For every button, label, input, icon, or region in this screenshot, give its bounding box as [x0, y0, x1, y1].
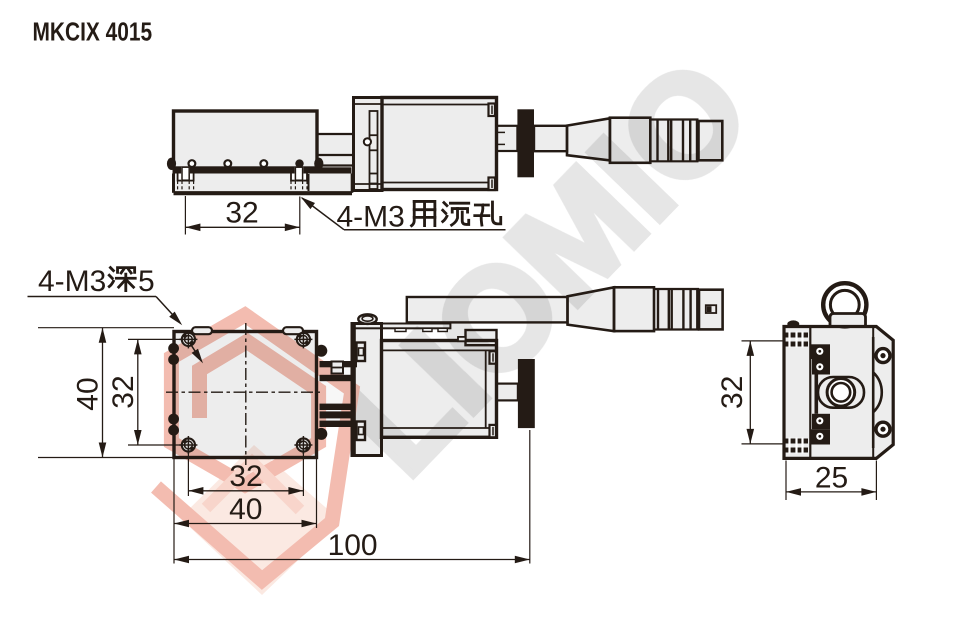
svg-text:100: 100: [328, 529, 378, 562]
svg-text:32: 32: [107, 375, 140, 408]
svg-text:32: 32: [225, 197, 258, 230]
svg-text:4-M3: 4-M3: [337, 201, 405, 234]
svg-text:40: 40: [72, 377, 105, 410]
svg-text:MKCIX 4015: MKCIX 4015: [33, 18, 153, 46]
svg-text:25: 25: [815, 462, 848, 495]
svg-text:4-M3: 4-M3: [38, 265, 106, 298]
svg-text:40: 40: [229, 493, 262, 526]
svg-text:32: 32: [716, 376, 749, 409]
svg-text:32: 32: [229, 460, 262, 493]
svg-text:5: 5: [138, 265, 155, 298]
